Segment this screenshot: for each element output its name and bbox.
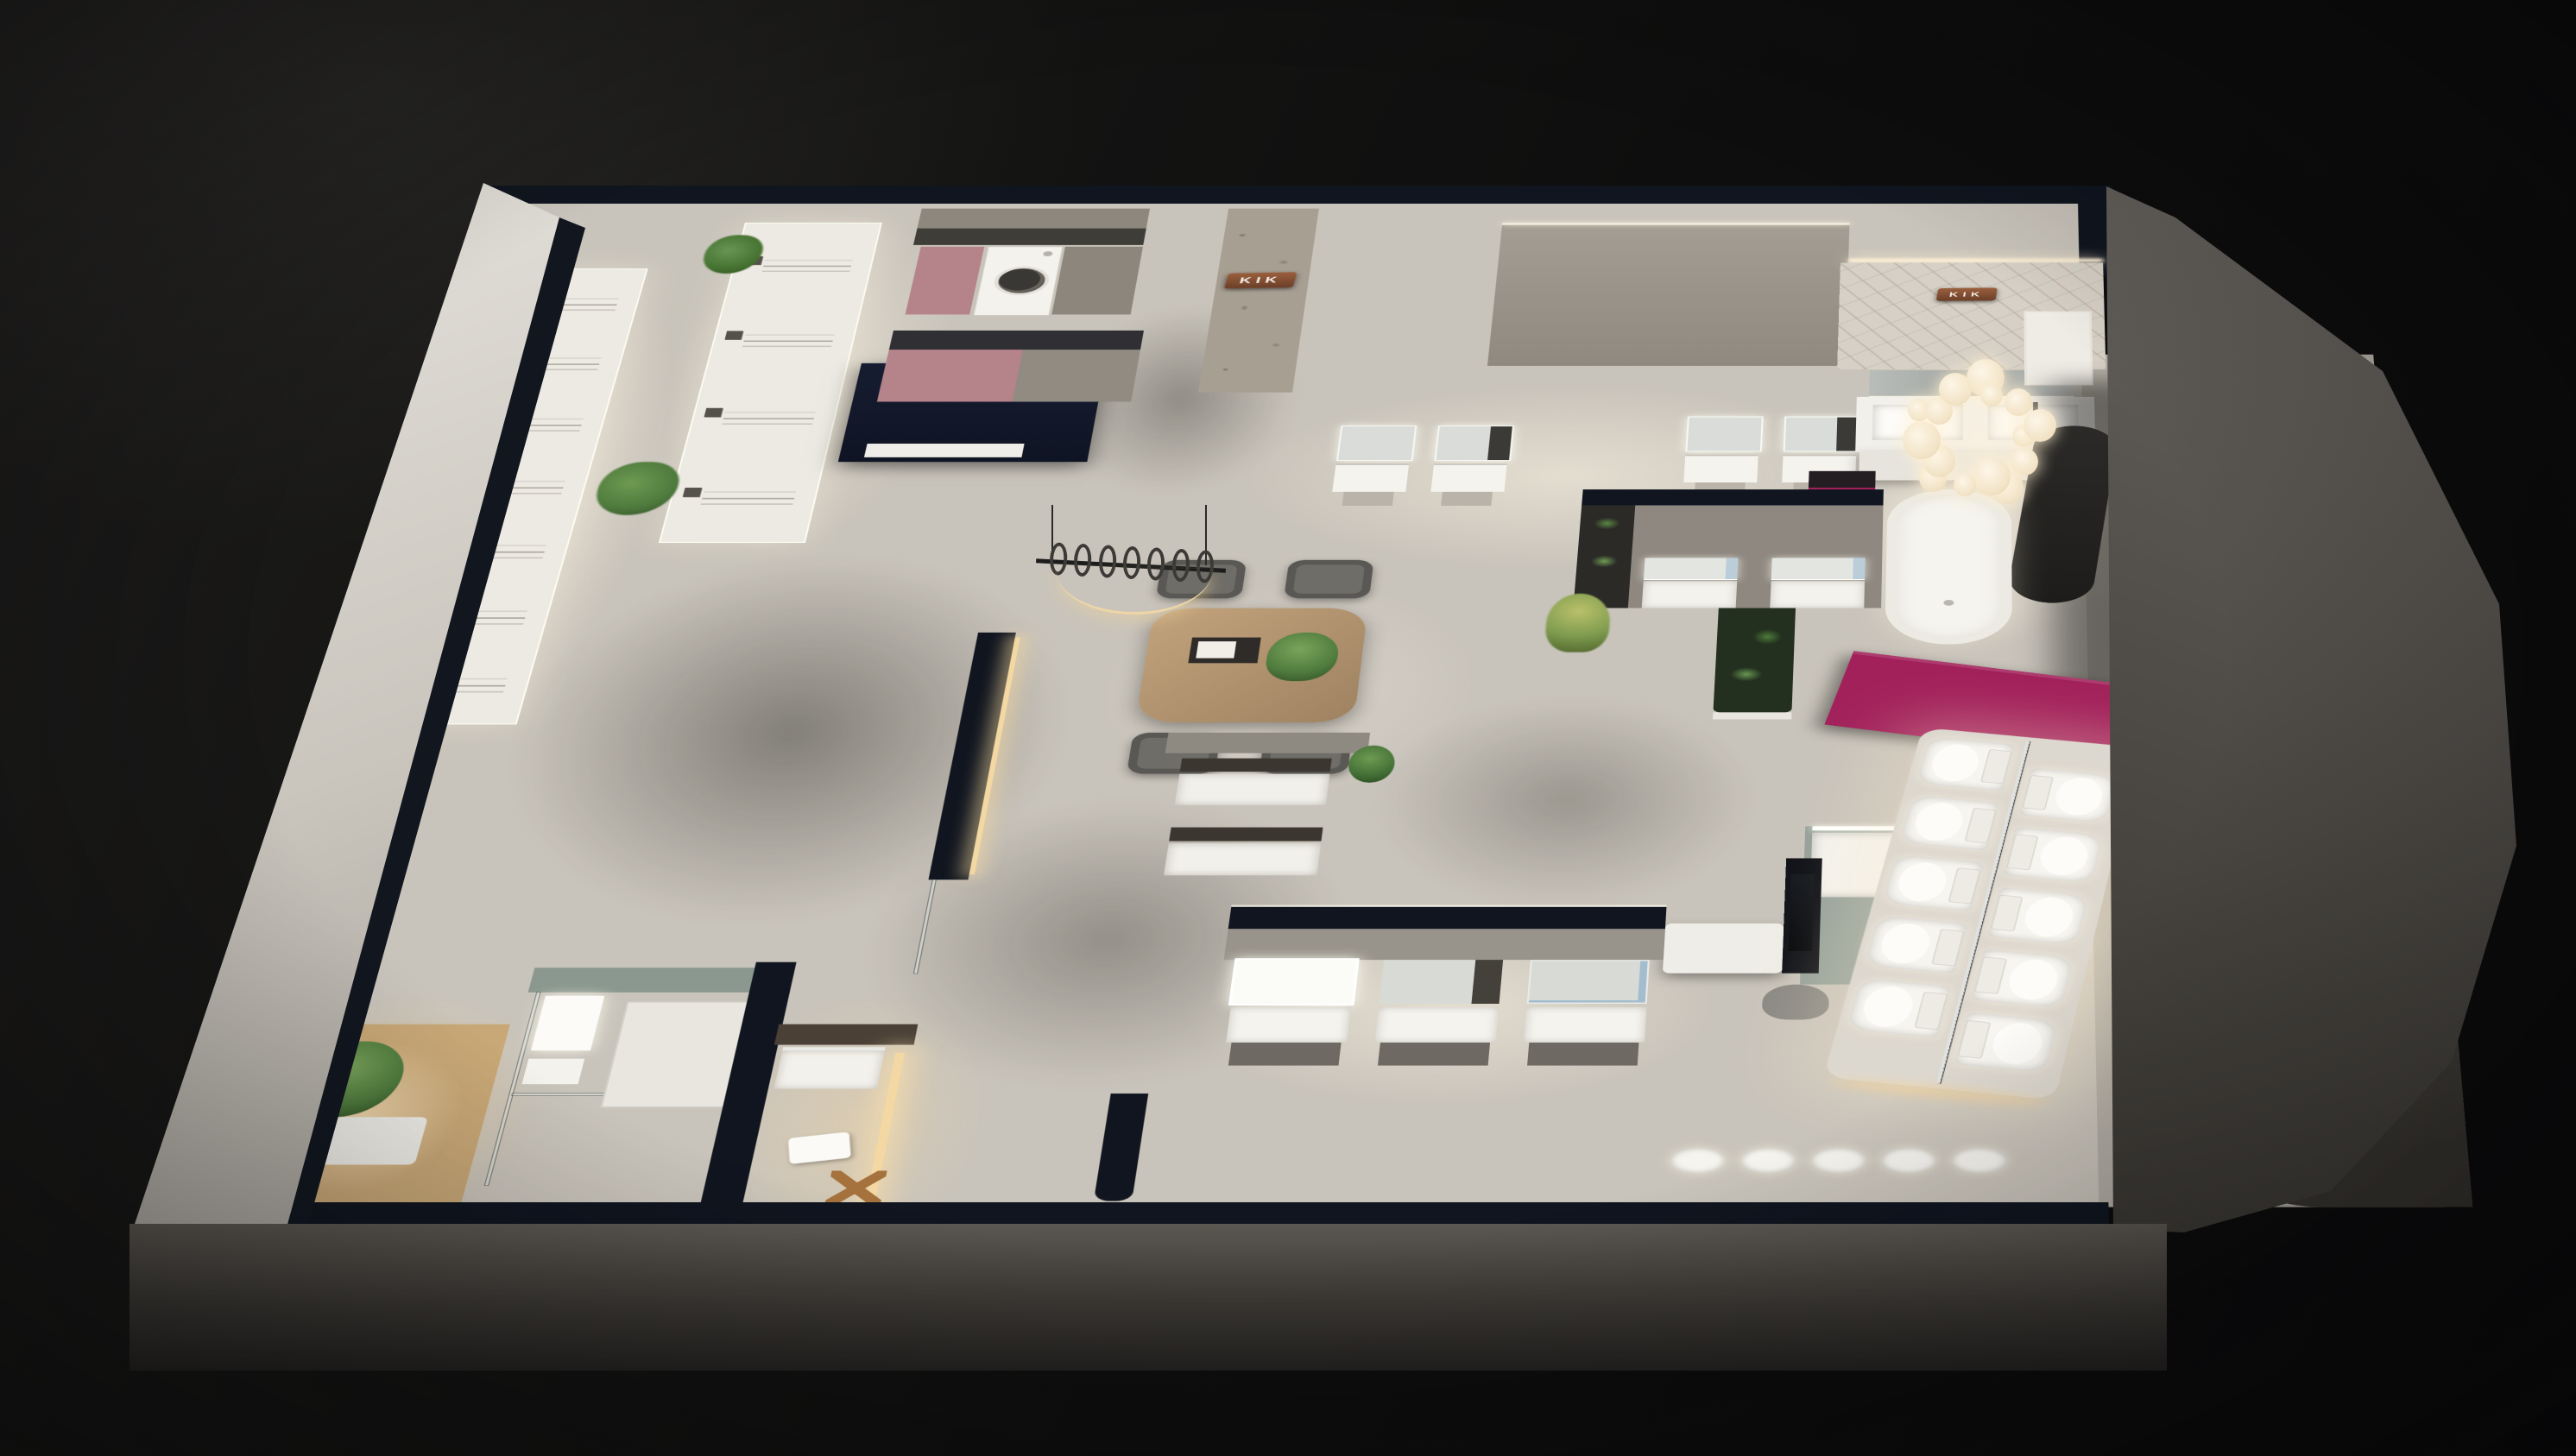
dark-frame-wall — [774, 1024, 918, 1045]
station — [375, 671, 531, 697]
dvanity — [1522, 960, 1650, 1065]
toilet — [2018, 768, 2118, 824]
mvanity — [1163, 828, 1323, 879]
dvanity — [1373, 960, 1504, 1065]
ladder-shelf-with-plants — [1573, 505, 1635, 608]
north-vanity-bay-west — [1329, 425, 1531, 518]
toilet — [1987, 887, 2090, 946]
ivanity — [1642, 558, 1739, 608]
desk-chair — [1762, 985, 1829, 1020]
station — [438, 473, 587, 498]
ivanity — [1770, 558, 1865, 608]
dark-carpet-area — [2139, 652, 2473, 1207]
toilet — [1954, 1012, 2059, 1074]
showroom-floorplan: KIK KIK — [146, 186, 2142, 1230]
basin-oval — [1810, 1148, 1866, 1173]
white-display-ledge — [243, 1117, 428, 1164]
laundry-counter — [913, 229, 1146, 245]
station — [418, 538, 569, 564]
basin-oval — [1952, 1148, 2007, 1173]
perspective-stage: KIK KIK — [0, 0, 2576, 1456]
concrete-display-wall — [1487, 225, 1849, 366]
station — [477, 350, 622, 374]
kik-sign-stone-wall: KIK — [1224, 272, 1297, 288]
consultation-desk — [1663, 923, 1784, 974]
toilet — [1865, 915, 1968, 974]
south-wall-top — [290, 1202, 2109, 1231]
mockup-vanity-column — [1162, 759, 1341, 886]
station — [458, 411, 606, 435]
basin-oval — [1670, 1148, 1726, 1173]
station — [669, 483, 818, 508]
south-edge-basin-row — [1670, 1148, 2013, 1178]
basin-oval — [1740, 1148, 1796, 1173]
mockup-sink — [521, 1059, 584, 1085]
basin-oval — [1881, 1148, 1936, 1173]
toilet — [1899, 795, 2000, 851]
kik-sign-marble-wall: KIK — [1936, 287, 1998, 300]
mockup-back-wall — [1165, 733, 1370, 753]
north-wall-top — [483, 186, 2112, 204]
mvanity — [1174, 759, 1332, 809]
chair — [1156, 560, 1247, 599]
island-vanity-row — [1642, 558, 1883, 608]
toilet — [1847, 978, 1952, 1038]
dvanity — [1222, 960, 1356, 1065]
laundry-pink-wall-panel — [877, 350, 1023, 401]
sage-wall-band — [528, 968, 764, 993]
vanity-unit — [1329, 425, 1417, 513]
premium-shelf-niche — [2024, 311, 2093, 385]
toilet — [1971, 949, 2074, 1008]
vanity-unit — [1429, 425, 1514, 513]
toilet — [1882, 854, 1985, 912]
station — [396, 603, 550, 630]
showroom-render-canvas: KIK KIK — [0, 0, 2576, 1456]
chair — [1284, 560, 1373, 599]
laundry-taupe-cabinet — [1051, 247, 1143, 315]
toilet — [2003, 827, 2104, 884]
freestanding-bathtub — [1885, 489, 2012, 644]
display-island-counter — [864, 444, 1025, 457]
south-display-partition-top — [1228, 907, 1667, 929]
south-display-partition-face — [1224, 929, 1665, 960]
station — [691, 404, 837, 428]
wooden-stool — [824, 1170, 887, 1206]
laundry-partition-top — [889, 331, 1144, 350]
laundry-taupe-wall-panel — [1013, 350, 1140, 401]
washing-machine — [974, 247, 1064, 316]
station — [496, 291, 640, 314]
tv-panel-wall — [1782, 858, 1822, 973]
mockup-vanity — [773, 1047, 885, 1088]
pbasin — [1872, 405, 1963, 440]
toilet — [1916, 736, 2016, 791]
laundry-upper-cabinets — [917, 209, 1150, 229]
south-vanity-display-row — [1222, 960, 1668, 1068]
station — [712, 327, 856, 350]
